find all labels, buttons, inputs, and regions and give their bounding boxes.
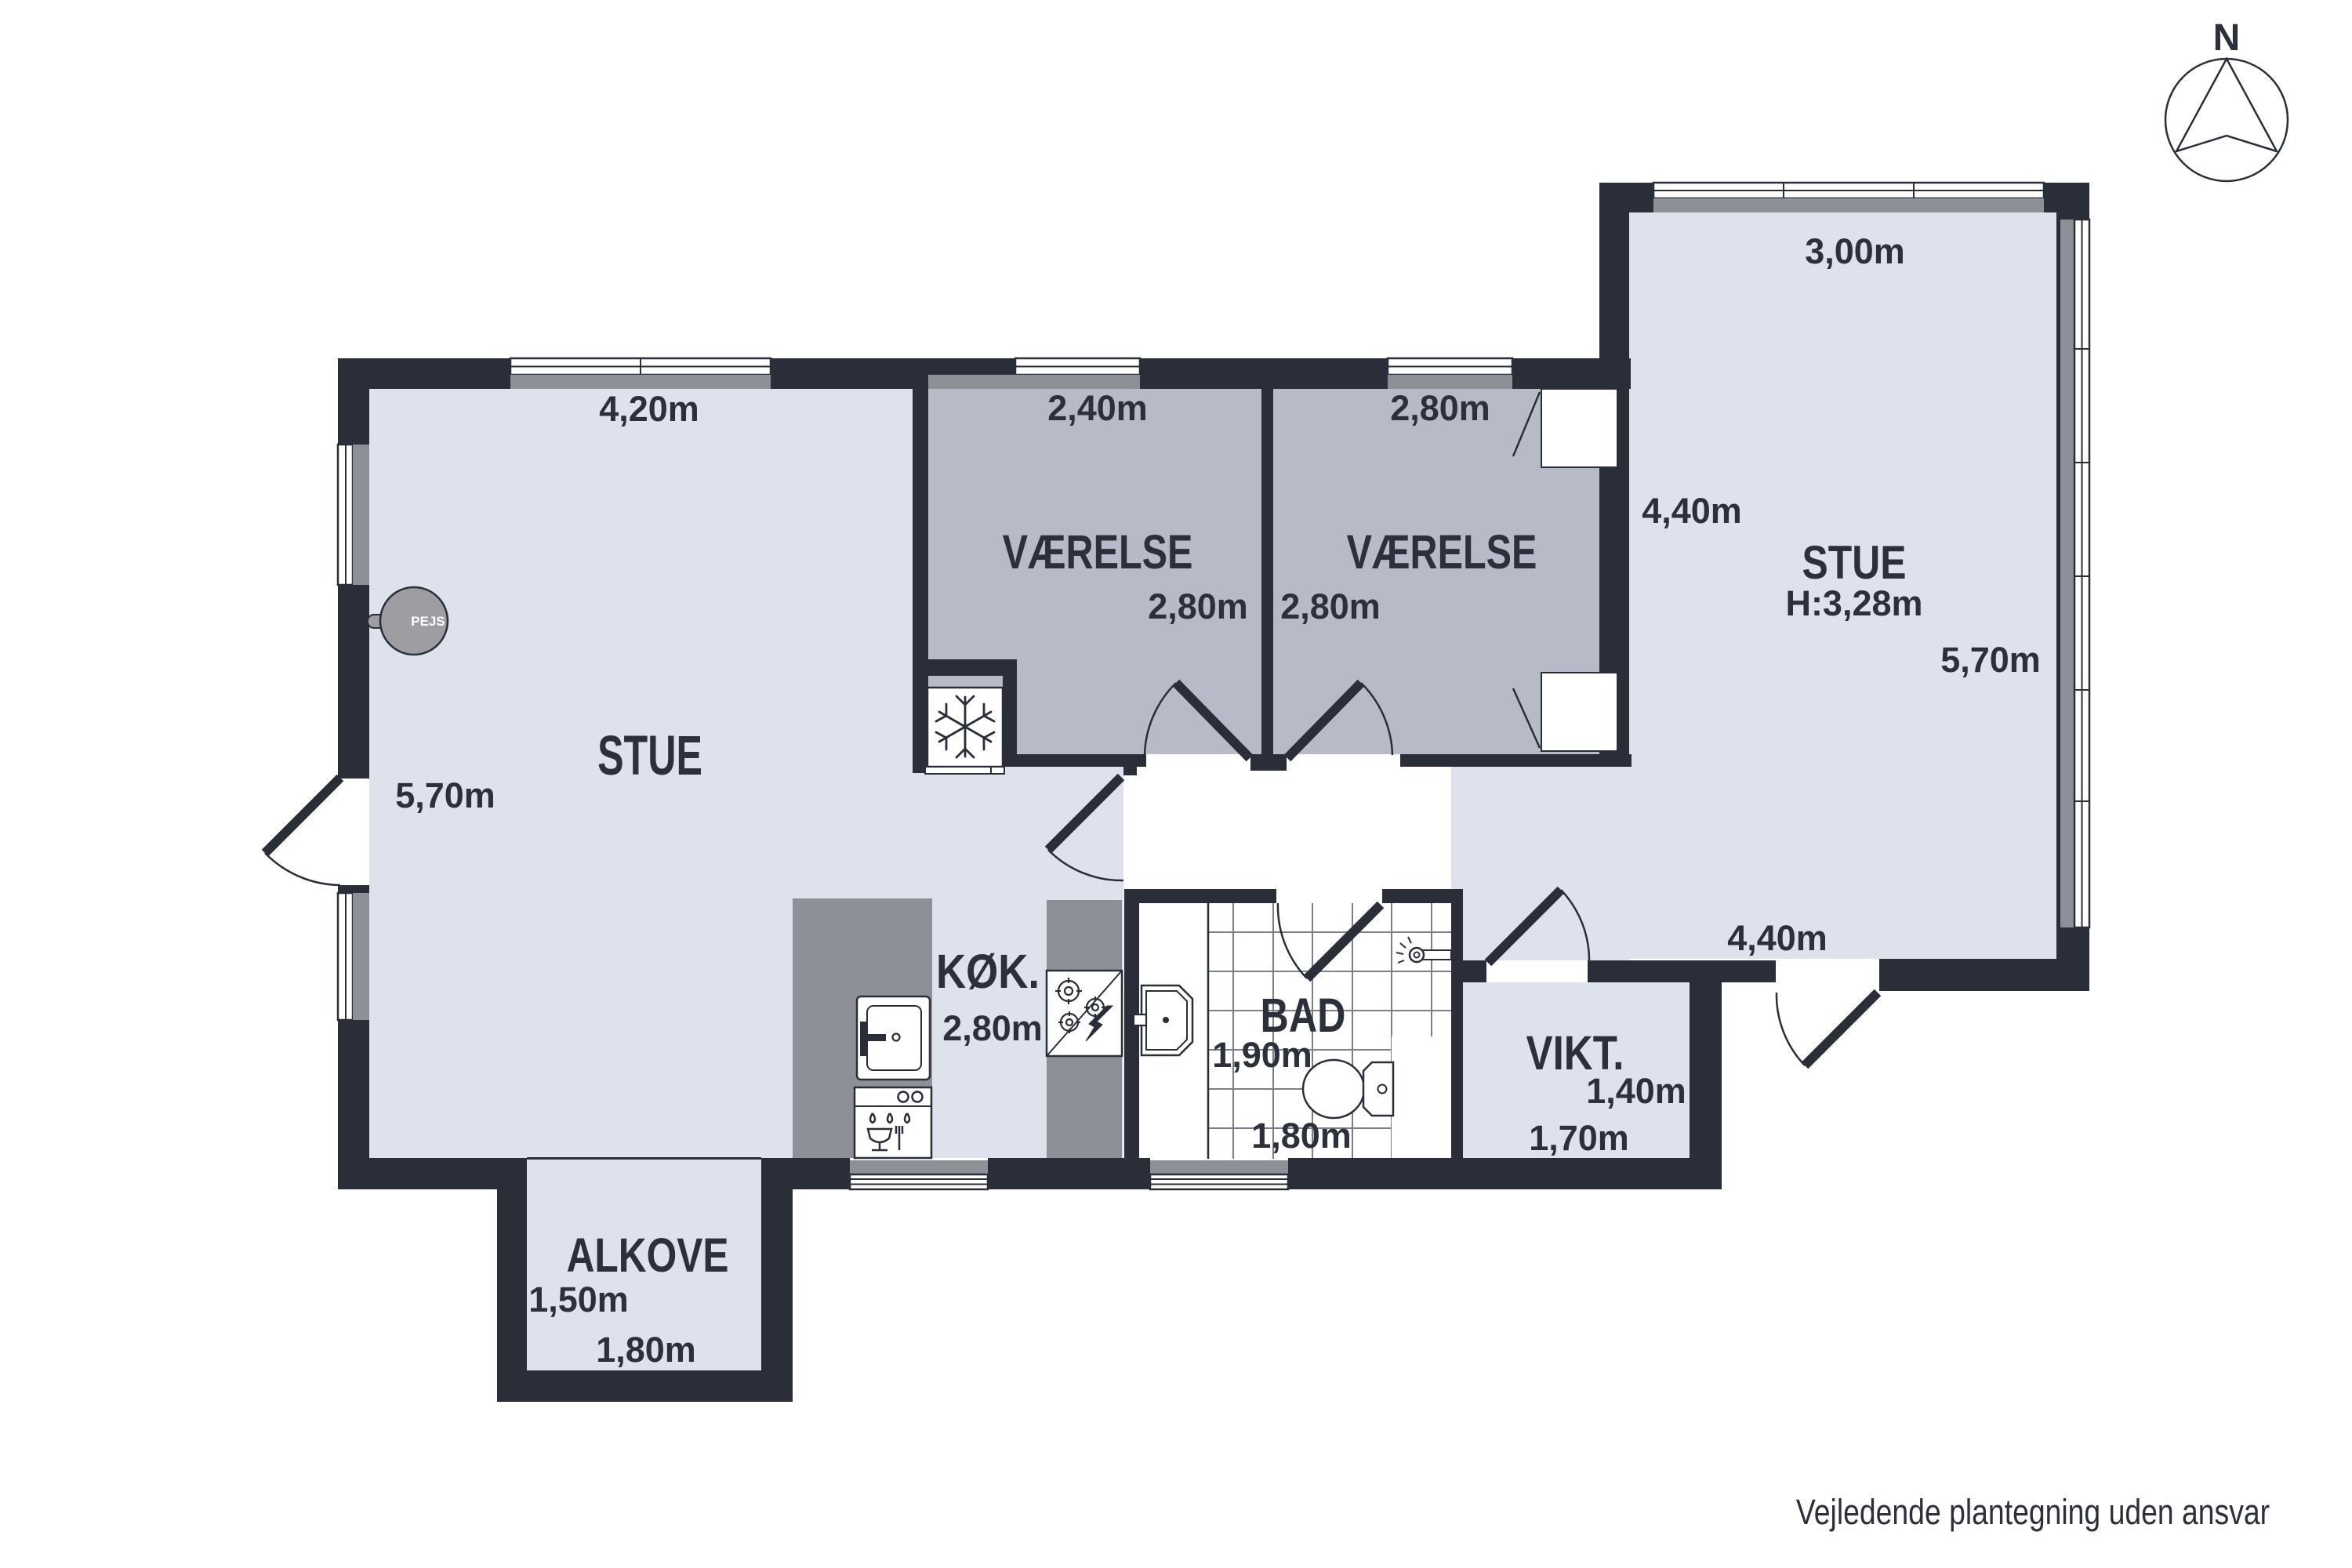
svg-text:1,80m: 1,80m xyxy=(596,1330,696,1370)
svg-text:VÆRELSE: VÆRELSE xyxy=(1003,525,1193,579)
svg-text:2,80m: 2,80m xyxy=(1390,388,1490,428)
svg-text:PEJS: PEJS xyxy=(411,614,445,629)
svg-text:VÆRELSE: VÆRELSE xyxy=(1347,525,1537,579)
svg-text:1,40m: 1,40m xyxy=(1586,1071,1686,1111)
svg-text:2,40m: 2,40m xyxy=(1047,388,1148,428)
svg-text:2,80m: 2,80m xyxy=(1148,586,1248,626)
svg-text:1,90m: 1,90m xyxy=(1212,1035,1312,1075)
svg-text:BAD: BAD xyxy=(1261,988,1346,1042)
svg-text:ALKOVE: ALKOVE xyxy=(567,1229,729,1282)
svg-text:2,80m: 2,80m xyxy=(942,1008,1043,1048)
svg-text:1,50m: 1,50m xyxy=(528,1279,629,1319)
svg-text:Vejledende plantegning uden an: Vejledende plantegning uden ansvar xyxy=(1796,1493,2270,1532)
svg-text:1,70m: 1,70m xyxy=(1529,1118,1629,1158)
svg-text:4,40m: 4,40m xyxy=(1727,918,1828,958)
svg-text:3,00m: 3,00m xyxy=(1805,231,1905,271)
svg-text:STUE: STUE xyxy=(1802,536,1907,589)
svg-text:4,20m: 4,20m xyxy=(599,389,699,429)
svg-text:2,80m: 2,80m xyxy=(1280,586,1381,626)
svg-text:KØK.: KØK. xyxy=(936,945,1040,998)
svg-text:5,70m: 5,70m xyxy=(395,775,495,815)
svg-text:N: N xyxy=(2213,17,2241,59)
svg-text:4,40m: 4,40m xyxy=(1642,491,1742,531)
svg-text:5,70m: 5,70m xyxy=(1940,640,2041,680)
svg-text:STUE: STUE xyxy=(597,724,702,787)
svg-text:1,80m: 1,80m xyxy=(1251,1116,1352,1156)
svg-text:H:3,28m: H:3,28m xyxy=(1785,583,1922,623)
